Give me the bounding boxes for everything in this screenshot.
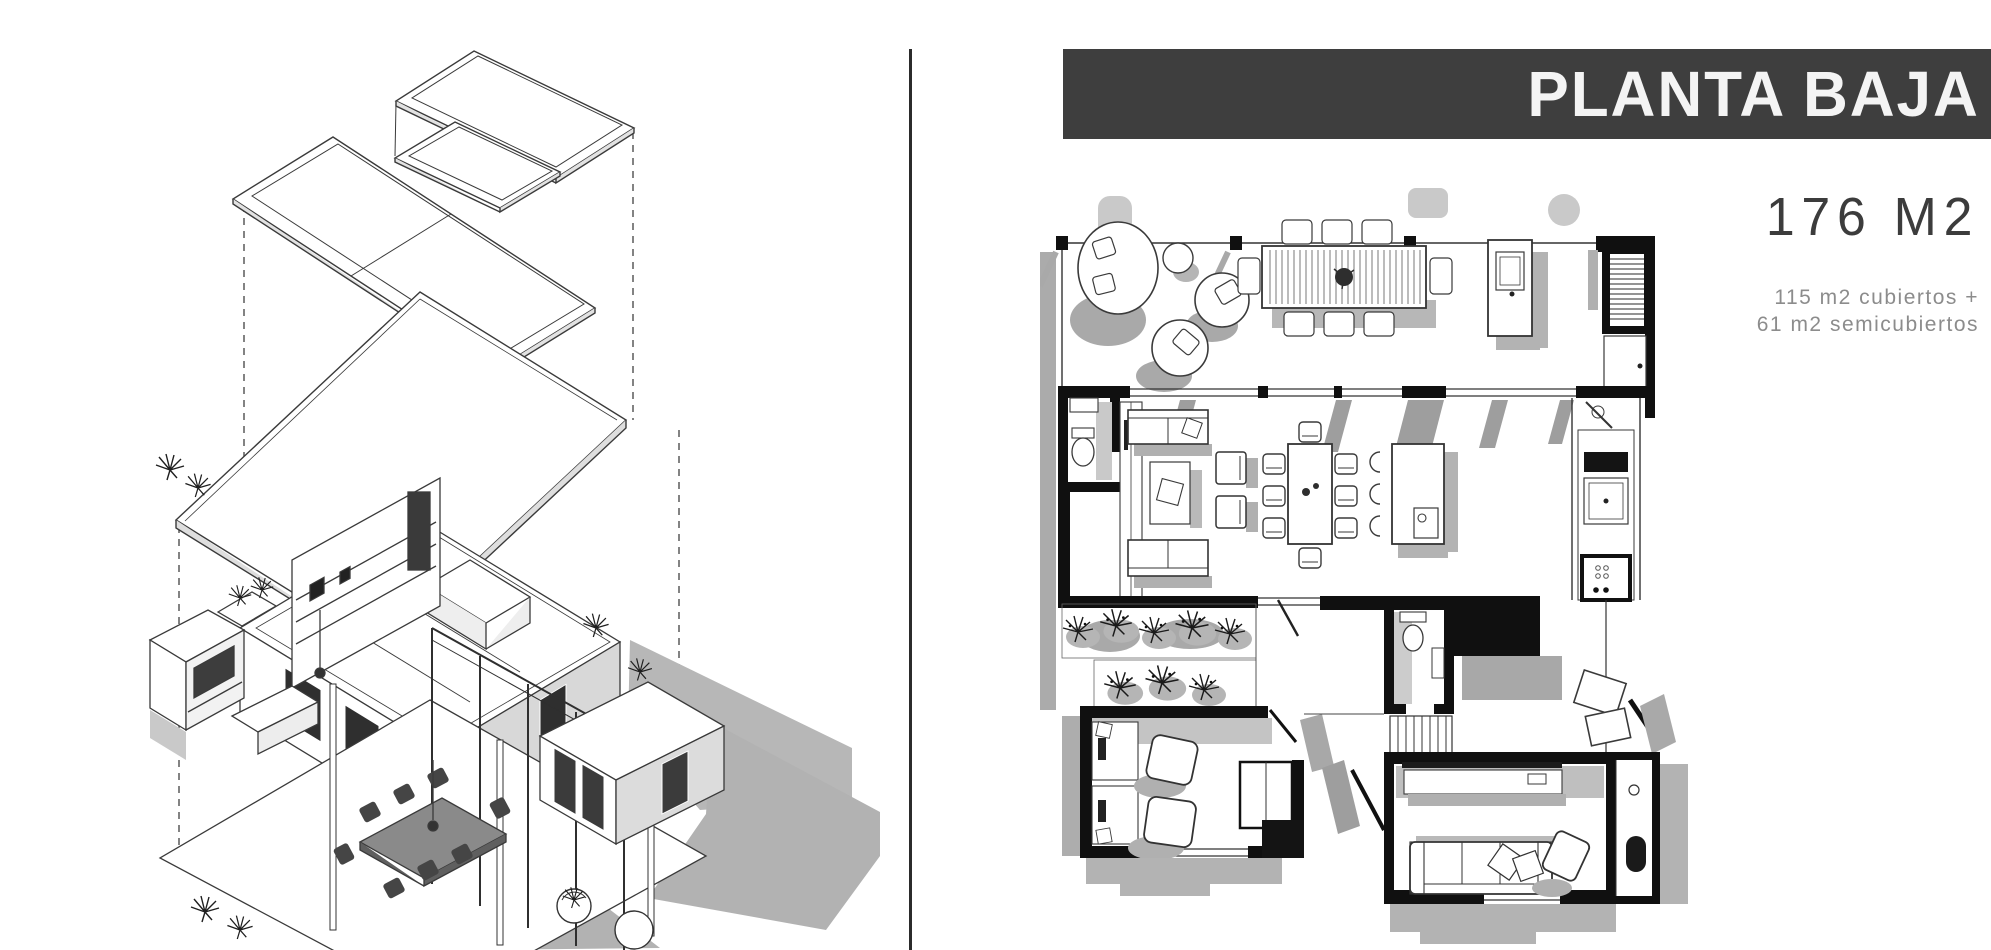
bedroom-shadow-bottom	[1390, 904, 1616, 944]
terrace	[1040, 188, 1655, 418]
living-kitchen	[1058, 392, 1640, 608]
lounge-chairs	[1070, 222, 1249, 392]
exploded-axonometric-drawing	[0, 0, 912, 950]
bedroom-closet	[1616, 752, 1660, 904]
tilted-door-panels	[1574, 670, 1676, 754]
office-room	[1062, 706, 1334, 896]
bedroom	[1384, 752, 1688, 944]
small-bathroom	[1384, 598, 1454, 714]
area-details: 115 m2 cubiertos + 61 m2 semicubiertos	[1757, 284, 1979, 338]
area-semicovered: 61 m2 semicubiertos	[1757, 311, 1979, 338]
wc	[1058, 392, 1120, 608]
outdoor-dining-table	[1238, 220, 1452, 336]
area-covered: 115 m2 cubiertos +	[1757, 284, 1979, 311]
area-headline: 176 M2	[1766, 186, 1979, 248]
title-banner: PLANTA BAJA	[1063, 49, 1991, 139]
plan-left-shadow	[1040, 252, 1056, 710]
panel-divider	[909, 49, 912, 950]
outdoor-island	[1488, 240, 1548, 350]
bedroom-sofa	[1410, 842, 1552, 894]
sofa-group	[1128, 410, 1258, 588]
presentation-sheet: PLANTA BAJA 176 M2 115 m2 cubiertos + 61…	[0, 0, 1991, 950]
dining-table	[1263, 422, 1357, 568]
page-title: PLANTA BAJA	[1527, 57, 1991, 131]
kitchen-island	[1370, 444, 1458, 558]
floor-plan-drawing	[1040, 180, 1700, 950]
office-shadow	[1086, 858, 1282, 896]
bedroom-shadow-right	[1660, 764, 1688, 904]
